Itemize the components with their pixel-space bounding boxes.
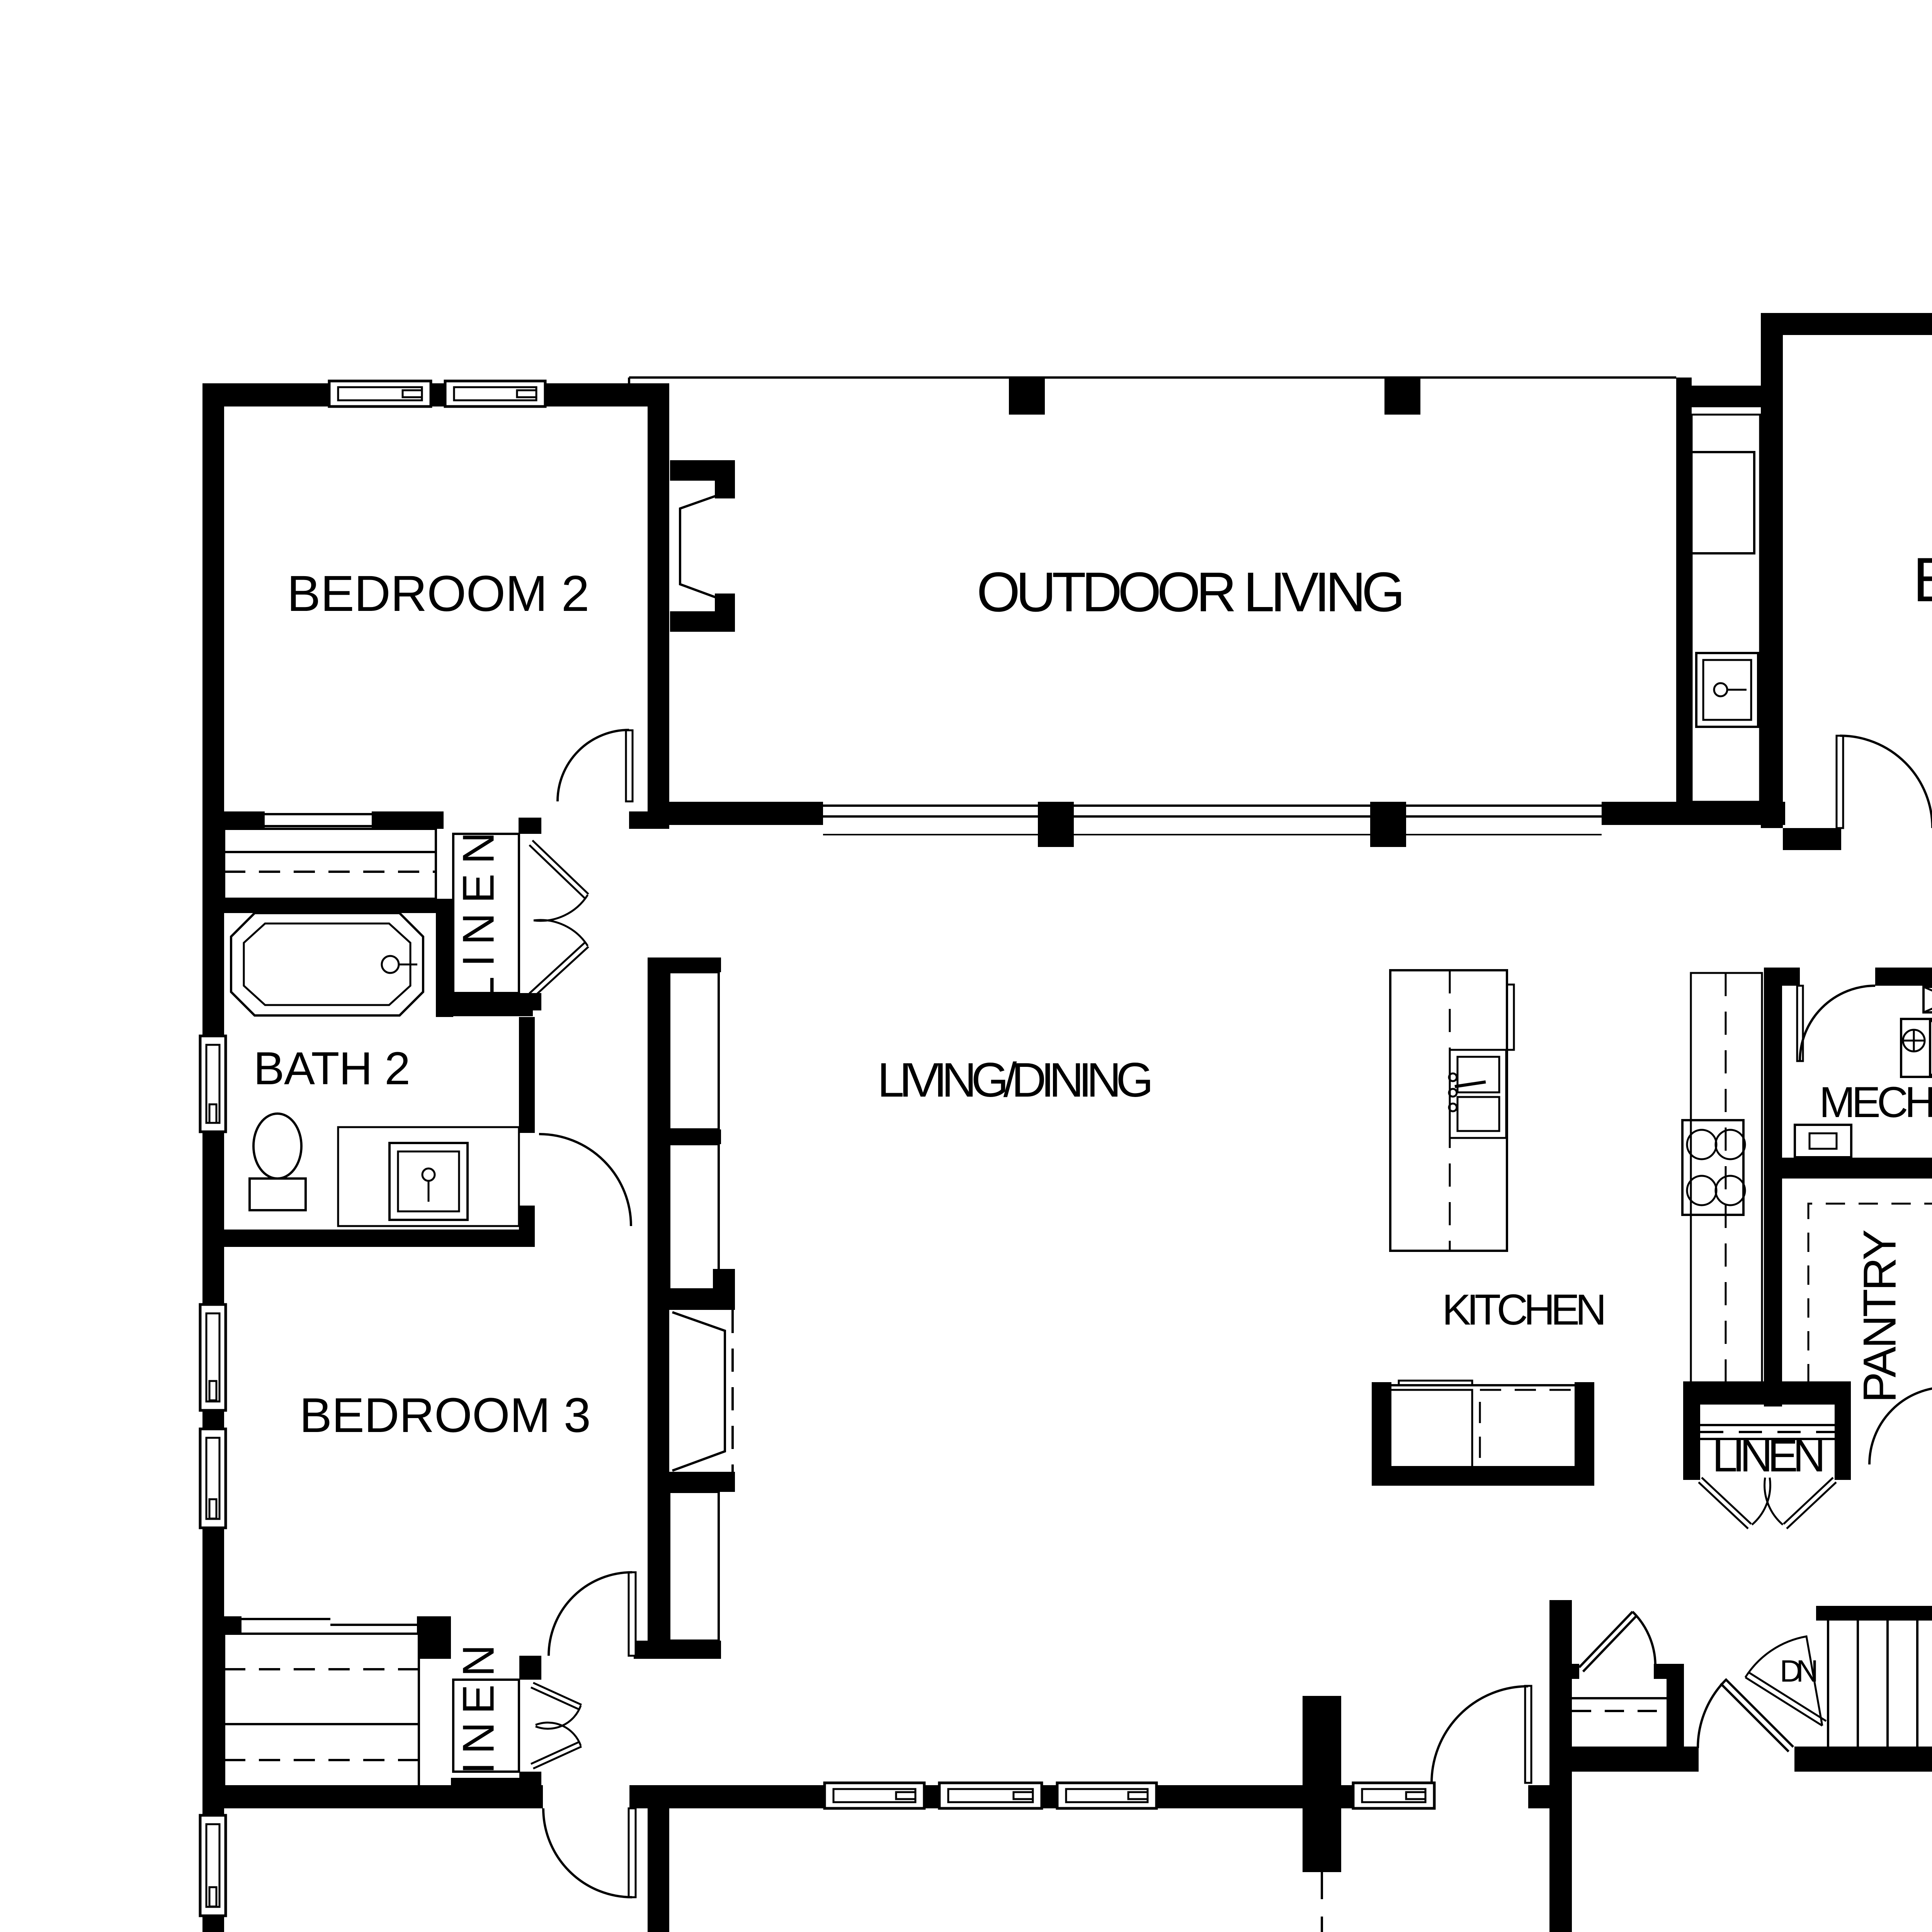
svg-text:BEDROOM 3: BEDROOM 3 <box>299 1388 591 1442</box>
svg-text:LINEN: LINEN <box>454 1645 503 1807</box>
svg-text:MECH.: MECH. <box>1819 1078 1932 1126</box>
svg-text:LIVING/DINING: LIVING/DINING <box>878 1053 1154 1107</box>
svg-text:PANTRY: PANTRY <box>1854 1230 1906 1403</box>
svg-text:BEDROOM 2: BEDROOM 2 <box>287 565 590 622</box>
svg-text:BATH 2: BATH 2 <box>253 1043 410 1094</box>
svg-text:KITCHEN: KITCHEN <box>1442 1286 1607 1334</box>
svg-text:LINEN: LINEN <box>1712 1430 1826 1481</box>
svg-text:BEDROOM: BEDROOM <box>1913 545 1932 615</box>
svg-text:DN: DN <box>1780 1654 1818 1688</box>
svg-text:OUTDOOR LIVING: OUTDOOR LIVING <box>977 561 1405 623</box>
